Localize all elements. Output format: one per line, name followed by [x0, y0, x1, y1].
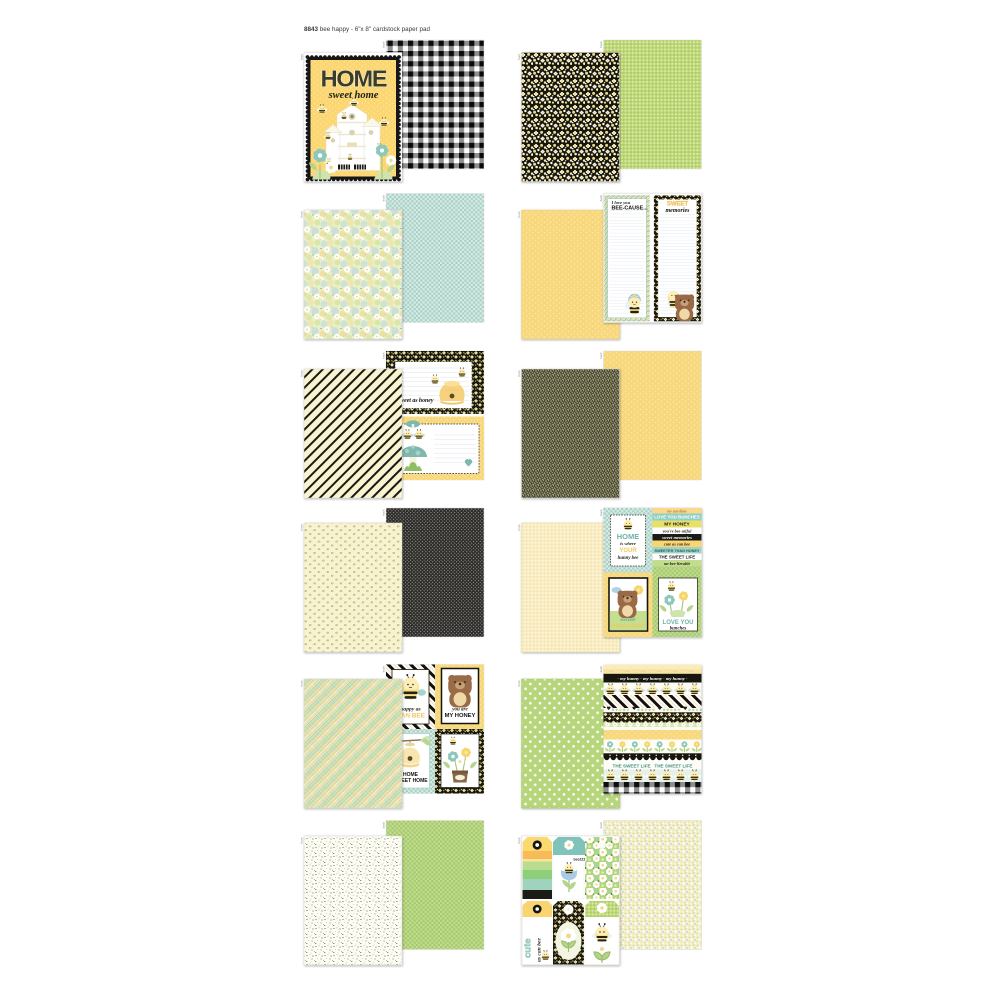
svg-text:MY HONEY: MY HONEY [664, 522, 690, 528]
svg-text:back: back [382, 41, 386, 48]
svg-text:back: back [382, 195, 386, 202]
svg-text:sweet as honey: sweet as honey [397, 398, 434, 404]
svg-text:back: back [599, 352, 603, 359]
svg-text:my sunshine: my sunshine [667, 509, 687, 513]
svg-text:cute: cute [523, 938, 534, 958]
svg-text:- my hunny - my hunny - my hun: - my hunny - my hunny - my hunny - [617, 676, 688, 681]
svg-text:front: front [517, 680, 521, 686]
svg-text:sweet memories: sweet memories [661, 535, 692, 540]
svg-text:LOVE YOU BUNCHES: LOVE YOU BUNCHES [654, 515, 700, 520]
svg-text:---: --- [673, 670, 677, 674]
svg-text:8843 bee happy - 6"x 8" cardst: 8843 bee happy - 6"x 8" cardstock paper … [304, 26, 430, 33]
svg-text:front: front [300, 680, 304, 686]
svg-text:back: back [599, 666, 603, 673]
svg-text:front: front [300, 211, 304, 217]
svg-text:YOUR: YOUR [619, 548, 637, 554]
svg-text:SWEET: SWEET [667, 202, 689, 208]
svg-text:THAN HONEY: THAN HONEY [610, 624, 646, 630]
svg-text:MY HONEY: MY HONEY [445, 713, 476, 719]
svg-text:front: front [517, 837, 521, 843]
svg-text:---: --- [641, 670, 645, 674]
svg-text:beeZZZ: beeZZZ [574, 858, 586, 862]
svg-text:HOME: HOME [617, 532, 640, 541]
svg-text:memories: memories [666, 208, 691, 214]
svg-text:front: front [517, 370, 521, 376]
svg-text:HOME: HOME [321, 66, 387, 92]
svg-text:un-bee-lievable: un-bee-lievable [664, 561, 691, 566]
svg-text:you're bee-utiful: you're bee-utiful [662, 528, 693, 533]
svg-text:cute as can bee: cute as can bee [664, 541, 690, 546]
svg-text:BEE-CAUSE...: BEE-CAUSE... [612, 206, 649, 212]
svg-text:THE SWEET LIFE: THE SWEET LIFE [659, 554, 695, 559]
svg-text:THE SWEET LIFE THE SWEET LIF: THE SWEET LIFE THE SWEET LIFE [613, 764, 693, 769]
svg-text:back: back [599, 195, 603, 202]
svg-text:front: front [300, 370, 304, 376]
svg-text:front: front [517, 54, 521, 60]
svg-text:you are: you are [451, 708, 468, 713]
svg-text:as can bee: as can bee [537, 938, 543, 962]
svg-text:front: front [300, 837, 304, 843]
svg-text:back: back [599, 822, 603, 829]
svg-text:I love you: I love you [611, 200, 631, 205]
svg-text:front: front [517, 211, 521, 217]
svg-text:back: back [382, 509, 386, 516]
svg-text:is where: is where [620, 541, 636, 546]
svg-text:---: --- [625, 670, 629, 674]
svg-text:bunches: bunches [670, 627, 687, 632]
svg-text:back: back [382, 822, 386, 829]
svg-text:front: front [300, 524, 304, 530]
svg-text:back: back [382, 666, 386, 673]
svg-text:SWEETER THAN HONEY: SWEETER THAN HONEY [655, 549, 700, 553]
svg-text:sweeter: sweeter [619, 618, 635, 623]
svg-text:front: front [300, 54, 304, 60]
svg-text:back: back [599, 509, 603, 516]
svg-text:front: front [517, 524, 521, 530]
svg-text:---: --- [689, 670, 693, 674]
svg-text:back: back [382, 352, 386, 359]
svg-text:LOVE YOU: LOVE YOU [663, 620, 694, 626]
svg-text:---: --- [609, 670, 613, 674]
svg-text:back: back [599, 41, 603, 48]
svg-text:hunny bee: hunny bee [618, 556, 640, 561]
svg-text:---: --- [657, 670, 661, 674]
